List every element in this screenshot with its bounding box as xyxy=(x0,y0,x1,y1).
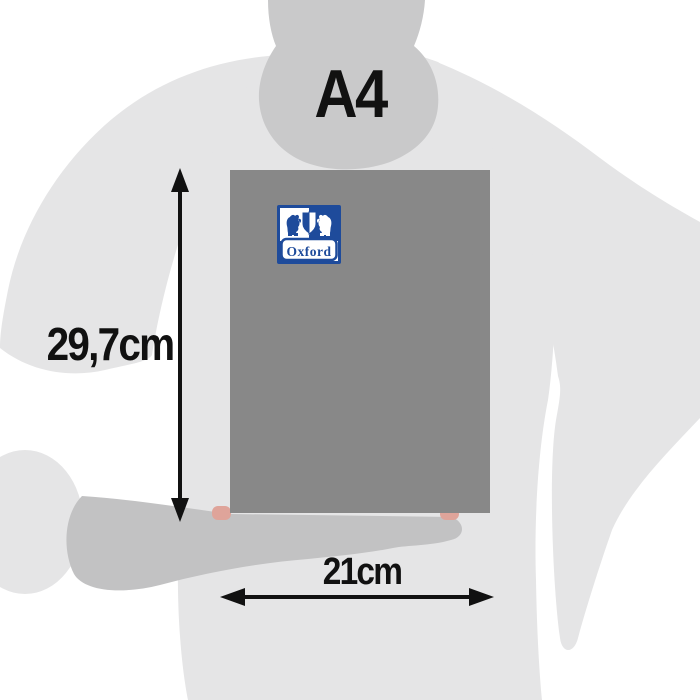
width-dimension-label: 21cm xyxy=(274,553,450,591)
oxford-logo-wordmark: Oxford xyxy=(277,243,341,261)
product-size-diagram: A4 29,7cm 21cm Oxford xyxy=(0,0,700,700)
height-dimension-label: 29,7cm xyxy=(22,321,198,367)
format-label: A4 xyxy=(262,60,438,128)
notebook-cover xyxy=(230,170,490,513)
